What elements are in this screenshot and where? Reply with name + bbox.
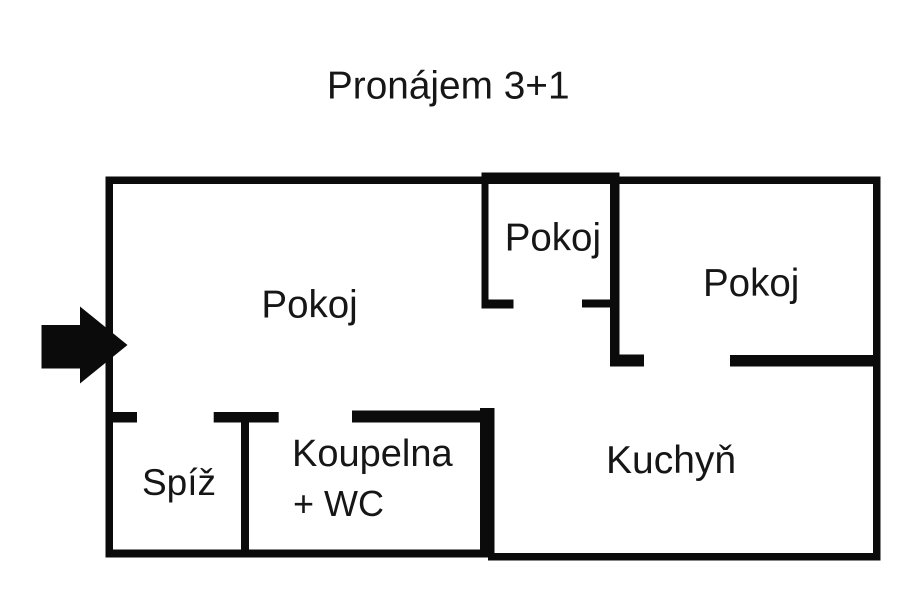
svg-text:Pokoj: Pokoj: [703, 262, 799, 305]
svg-text:+ WC: + WC: [293, 483, 384, 524]
svg-text:Spíž: Spíž: [142, 462, 216, 503]
svg-text:Pokoj: Pokoj: [505, 217, 601, 260]
svg-text:Pokoj: Pokoj: [261, 284, 357, 327]
svg-text:Pronájem 3+1: Pronájem 3+1: [327, 65, 570, 108]
svg-text:Kuchyň: Kuchyň: [606, 439, 736, 482]
svg-text:Koupelna: Koupelna: [292, 433, 453, 475]
